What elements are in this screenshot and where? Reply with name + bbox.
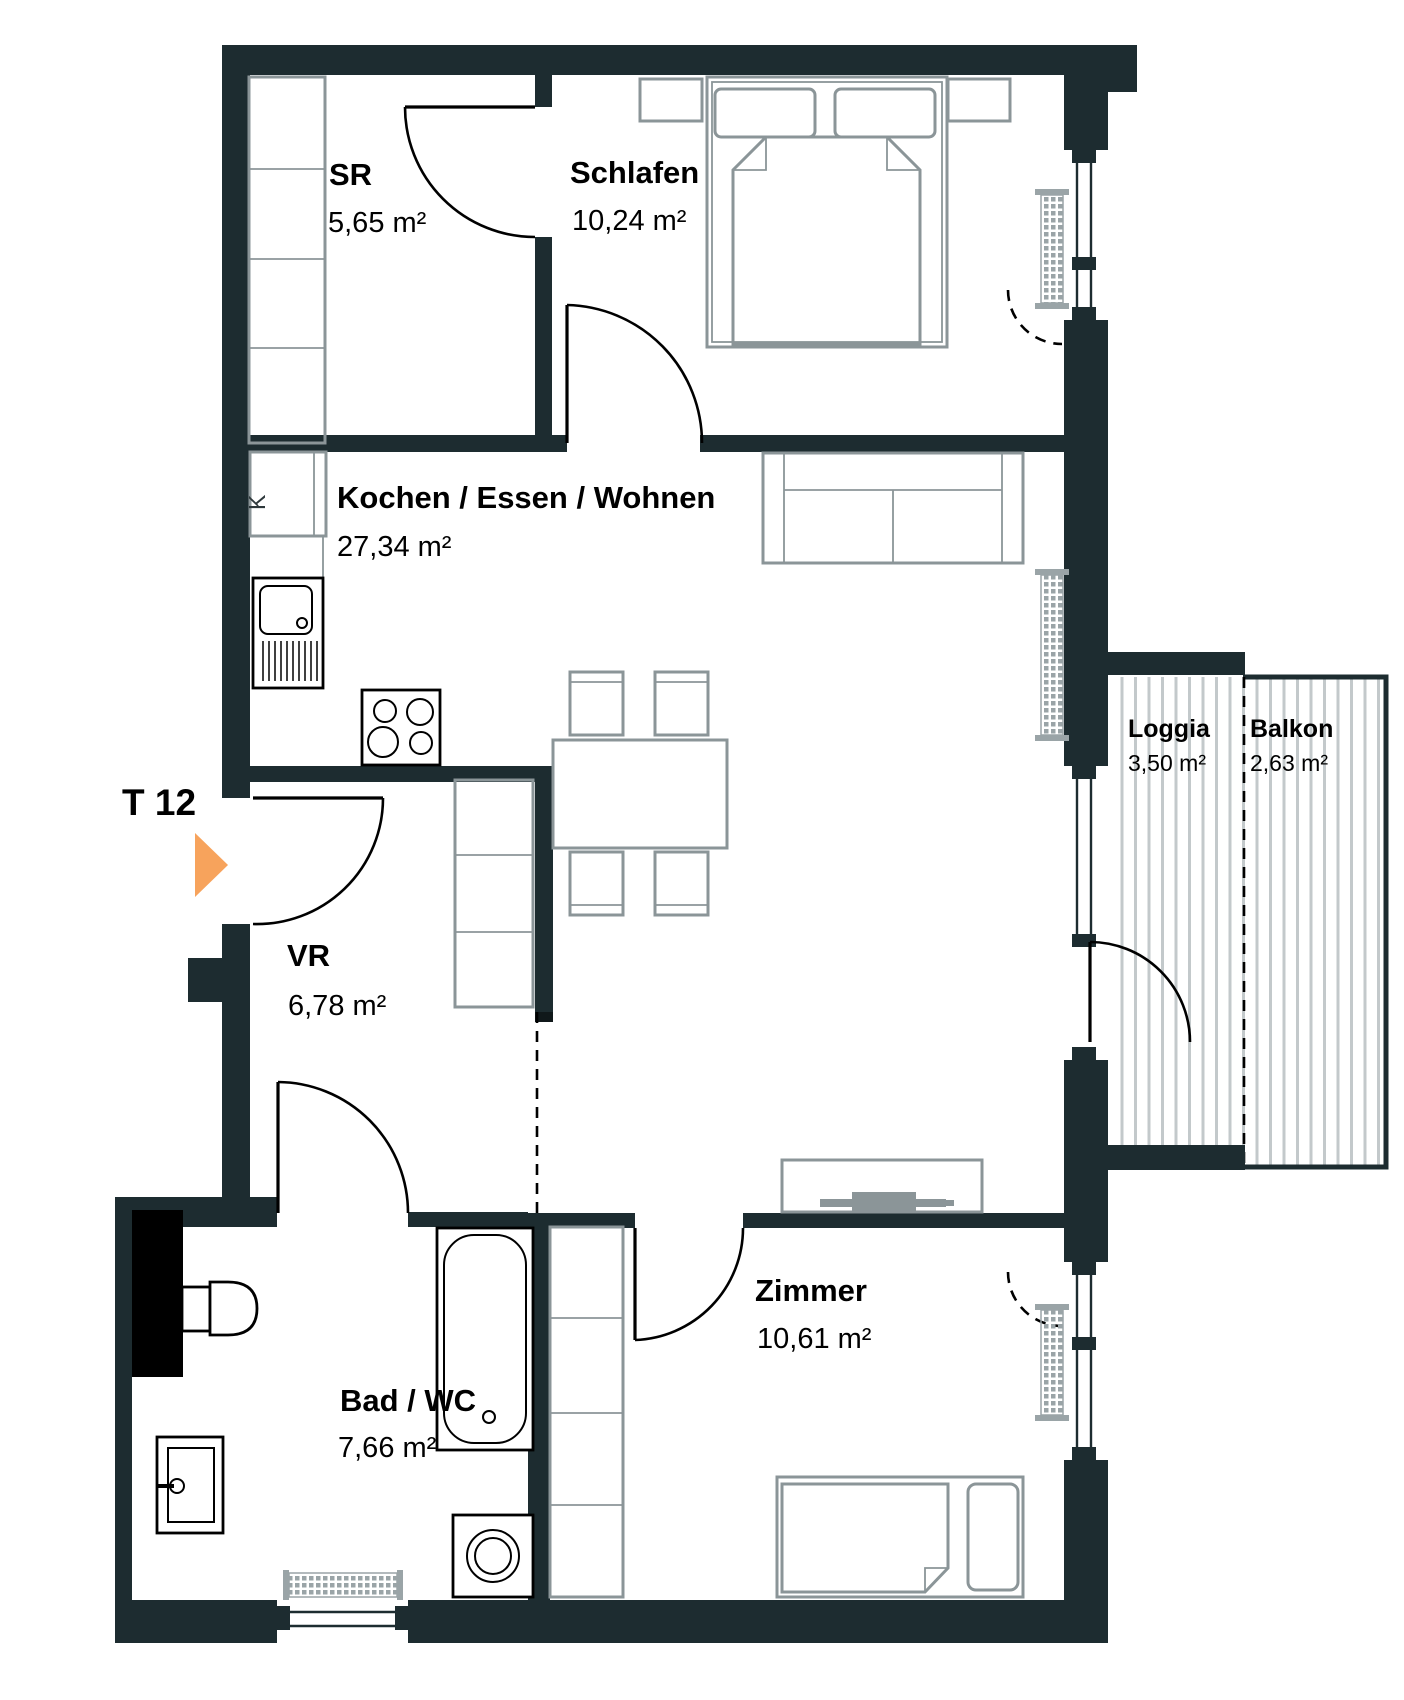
window-mullion [1072,307,1096,320]
room-area-kochen: 27,34 m² [337,531,452,563]
room-label-sr: SR [329,157,372,192]
window-mullion [1072,1447,1096,1460]
dining-table [553,740,727,848]
room-area-bad: 7,66 m² [338,1432,437,1464]
room-label-loggia: Loggia [1128,715,1211,743]
pillow [835,89,935,137]
radiator-cap [397,1570,403,1600]
washer-outline [453,1515,533,1597]
room-label-kochen: Kochen / Essen / Wohnen [337,480,715,515]
single-bed [777,1477,1023,1597]
radiator-body [1041,575,1063,735]
room-area-vr: 6,78 m² [288,990,387,1022]
pillow [715,89,815,137]
washing-machine [453,1515,533,1597]
room-label-vr: VR [287,938,330,973]
tv-icon [938,1200,954,1206]
window-mullion [1072,1047,1096,1060]
bedroom-window [1064,150,1108,320]
window-opening [1064,150,1108,320]
radiator-bedroom [1035,189,1069,309]
sofa [763,453,1023,563]
zimmer-window [1064,1262,1108,1460]
sr-closet [249,77,325,443]
radiator-body [1041,195,1063,303]
stove [362,690,440,765]
room-label-zimmer: Zimmer [755,1273,867,1308]
radiator-cap [1035,303,1069,309]
floor-plan: K [0,0,1404,1700]
closet-outline [550,1227,623,1597]
room-area-sr: 5,65 m² [328,207,427,239]
radiator-body [289,1573,397,1597]
room-area-zimmer: 10,61 m² [757,1323,872,1355]
schlafen-door [567,305,702,443]
room-label-balkon: Balkon [1250,715,1333,743]
bed-frame [707,77,947,347]
window-opening [1064,1262,1108,1460]
fridge-label: K [244,494,270,510]
nightstand [640,79,702,121]
pillow [968,1484,1018,1590]
window-mullion [1072,1262,1096,1275]
radiator-living [1035,569,1069,741]
door-swing [567,305,702,443]
nightstand [948,79,1010,121]
window-mullion [1072,934,1096,947]
window-opening [1064,766,1108,1060]
door-swing [278,1082,408,1213]
washbasin [157,1437,223,1533]
radiator-bath [283,1570,403,1600]
window-mullion [1072,257,1096,270]
tv-sideboard [782,1160,982,1213]
window-opening [277,1600,408,1643]
chair [655,672,708,735]
blanket [782,1484,948,1592]
entrance-door [253,798,383,924]
vr-closet [455,780,533,1007]
radiator-cap [1035,1304,1069,1310]
entrance-arrow-icon [195,833,228,897]
door-swing [635,1228,743,1340]
tv-icon [852,1192,916,1199]
room-area-schlafen: 10,24 m² [572,205,687,237]
chair [655,852,708,915]
window-mullion [1072,766,1096,779]
toilet [182,1282,257,1335]
kitchen-sink [253,578,323,688]
closet-outline [249,77,325,443]
closet-outline [455,780,533,1007]
tv-icon [820,1199,946,1207]
radiator-cap [1035,569,1069,575]
chair [570,852,623,915]
bed-frame [777,1477,1023,1597]
radiator-cap [1035,735,1069,741]
room-label-bad: Bad / WC [340,1383,476,1418]
room-area-loggia: 3,50 m² [1128,750,1206,776]
bed-frame-inner [712,82,942,342]
radiator-cap [1035,189,1069,195]
double-bed [640,77,1010,347]
bathroom-door [278,1082,408,1213]
radiator-cap [283,1570,289,1600]
dining-set [553,672,727,915]
door-swing [253,798,383,924]
room-label-schlafen: Schlafen [570,155,699,190]
unit-label: T 12 [122,782,196,823]
zimmer-wardrobe [550,1227,623,1597]
chair [570,672,623,735]
window-mullion [1072,150,1096,163]
window-mullion [1072,1337,1096,1350]
installation-shaft-wall [132,1210,183,1377]
floor-plan-drawing: K [0,0,1404,1700]
tv-icon [852,1207,916,1213]
bathroom-window [277,1600,408,1643]
zimmer-door [635,1228,743,1340]
radiator-cap [1035,1415,1069,1421]
blanket [733,137,920,344]
room-area-balkon: 2,63 m² [1250,750,1328,776]
toilet-tank [182,1287,210,1331]
window-mullion [277,1606,290,1630]
toilet-bowl [210,1282,257,1335]
radiator-body [1041,1310,1063,1415]
window-mullion [395,1606,408,1630]
